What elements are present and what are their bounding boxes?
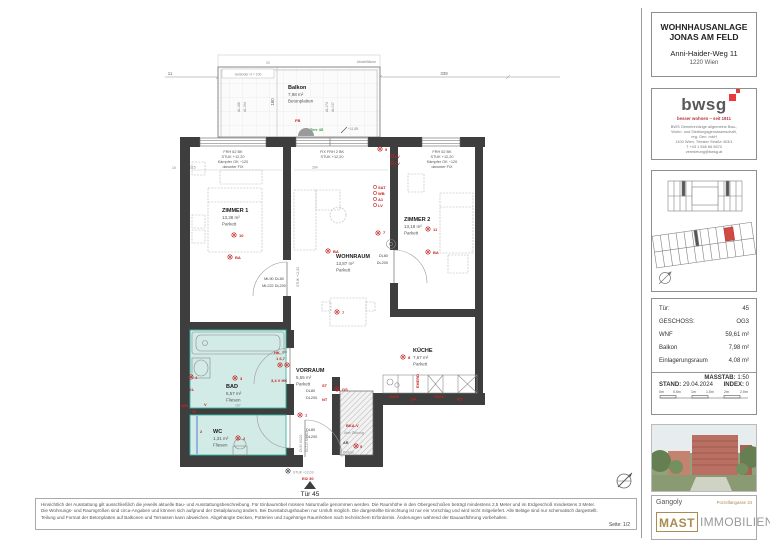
window-annotations: FRH 62 BK STUK +12,20 Kämpfer OK ~120 da… — [218, 150, 458, 169]
room-name: Balkon — [288, 85, 307, 91]
immobilien-logo-text: IMMOBILIEN — [700, 515, 770, 529]
element-code: AL174 — [325, 102, 329, 112]
bwsg-block: bwsg besser wohnen – seit 1911 BWS Gemei… — [651, 88, 757, 160]
row-label: GESCHOSS: — [659, 319, 695, 325]
room-name: WC — [213, 429, 222, 435]
unit-info-table: Tür: 45 GESCHOSS: OG3 WNF 59,61 m² Balko… — [651, 298, 757, 415]
row-value: 7,98 m² — [729, 345, 749, 351]
room-floor: Parkett — [404, 231, 419, 236]
site-plan-block — [651, 170, 757, 292]
scale-tick-label: 1.5m — [706, 390, 714, 394]
project-name-line1: WOHNHAUSANLAGE — [652, 22, 756, 32]
north-arrow-icon — [612, 468, 636, 497]
wb-label: WB — [378, 191, 385, 196]
balcony: Geländer H = 100 180 Balkon 7,98 m² Beto… — [218, 67, 380, 137]
abstellflaeche-strip: Abstellfläche — [218, 55, 380, 67]
eherd-label: EHERD — [415, 374, 420, 388]
dim-label: 264 — [312, 166, 318, 170]
abstellflaeche-label: Abstellfläche — [357, 60, 376, 64]
dim-label: 20 — [266, 61, 270, 65]
disclaimer-line: Die Wohnungs- und Raumgrößen sind circa-… — [41, 508, 631, 514]
row-value: OG3 — [736, 319, 749, 325]
window-spec: Kämpfer OK ~120 — [427, 160, 458, 164]
room-floor: Betonplatten — [288, 99, 314, 104]
project-city: 1220 Wien — [652, 60, 756, 66]
bwsg-logo-text: bwsg — [681, 95, 726, 114]
podest-label: Podest — [343, 451, 354, 455]
door-size: ML90 DL80 — [264, 277, 284, 281]
sheet-divider — [641, 8, 642, 538]
ba-label: BA — [235, 255, 241, 260]
mast-logo-text: MAST — [656, 512, 698, 532]
site-plan-drawing — [652, 171, 756, 291]
room-name: VORRAUM — [296, 368, 325, 374]
sat-label: SAT — [378, 185, 386, 190]
mast-logo: MAST IMMOBILIEN — [656, 512, 752, 532]
project-address: Anni-Haider-Weg 11 — [652, 49, 756, 58]
window-spec: darunter FIX — [222, 165, 244, 169]
door-size: ML222 DL200 — [262, 284, 286, 288]
index-value: 0 — [746, 382, 749, 388]
entrance-marker — [304, 481, 316, 489]
stand-value: 29.04.2024 — [683, 382, 713, 388]
bwsg-org-line: vermietung@bwsg.at — [652, 149, 756, 154]
lv-label: LV — [378, 203, 383, 208]
room-floor: Parkett — [413, 362, 428, 367]
floor-plan: 11 430 339 20 Abstellfläche Geländer H =… — [0, 0, 641, 545]
lv-label: LV — [395, 161, 400, 166]
ba-label: BA — [433, 250, 439, 255]
broker-block: Gangoly Porzellangasse 34 MAST IMMOBILIE… — [651, 495, 757, 540]
element-code: AL194 — [243, 102, 247, 112]
lv-label: LV — [395, 154, 400, 159]
kl-label: KL — [189, 387, 195, 392]
dimension-chain-interior: 15 215 264 — [172, 166, 388, 171]
h105-label: H105 — [389, 394, 399, 399]
room-floor: Fliesen — [226, 398, 241, 403]
window-spec: STUK +12,20 — [222, 155, 245, 159]
building-rendering — [651, 424, 757, 492]
door-size: DL80 — [306, 389, 315, 393]
railing-label: Geländer H = 100 — [235, 73, 262, 77]
ba-label: BA — [333, 249, 339, 254]
room-name: KÜCHE — [413, 347, 433, 354]
room-area: 13,18 m² — [404, 224, 422, 229]
element-code: AL037 — [331, 102, 335, 112]
room-area: 7,98 m² — [288, 92, 304, 97]
row-value: 4,08 m² — [729, 358, 749, 364]
door-size: DL80 — [379, 254, 388, 258]
outlet-number: 9 — [385, 147, 388, 152]
outlet-number: 1 — [305, 413, 308, 418]
architect-name: Gangoly — [656, 499, 682, 506]
st-label: ST — [322, 383, 328, 388]
index-label: INDEX: — [724, 382, 744, 388]
page-number: Seite: 1/2 — [609, 522, 630, 528]
entrance: STUK +12,03 EI2 30 Tür 45 — [286, 469, 320, 498]
entrance-door-label: Tür 45 — [301, 491, 320, 498]
outlet-number: 10 — [239, 233, 244, 238]
fb-label: FB — [295, 118, 300, 123]
v-label: V — [204, 402, 207, 407]
massstab-label: MASSTAB: — [704, 375, 735, 381]
row-label: Tür: — [659, 306, 670, 312]
terrace-door-label: Terr 45 — [310, 127, 324, 132]
ar-label: AR — [343, 441, 349, 445]
scale-tick-label: 0.5m — [673, 390, 681, 394]
h105-label: H105 — [434, 394, 444, 399]
bwsg-logo-square-icon — [736, 89, 740, 93]
door-size: DL90 M222 — [299, 434, 303, 452]
room-area: 5,55 m² — [296, 375, 312, 380]
room-floor: Parkett — [222, 222, 237, 227]
outlet-number: 8 — [408, 355, 411, 360]
room-name: ZIMMER 1 — [222, 208, 248, 214]
furniture — [192, 162, 473, 326]
outlet-number: 7 — [342, 310, 345, 315]
row-value: 59,61 m² — [725, 332, 749, 338]
disclaimer-line: Teilung und Format der Betonplatten auf … — [41, 515, 631, 521]
disclaimer-block: Hinsichtlich der Ausstattung gilt aussch… — [35, 498, 637, 530]
massstab-value: 1:50 — [737, 375, 749, 381]
dim-label: 15 — [172, 166, 176, 170]
gs-label: GS — [342, 387, 348, 392]
outlet-number: 11 — [433, 227, 438, 232]
window-spec: darunter FIX — [431, 165, 453, 169]
row-value: 45 — [742, 306, 749, 312]
project-name-line2: JONAS AM FELD — [652, 32, 756, 42]
a1-label: A1 — [378, 197, 384, 202]
room-area: 5,57 m² — [226, 391, 242, 396]
room-name: ZIMMER 2 — [404, 217, 430, 223]
tr-label: TR — [191, 409, 196, 414]
row-label: WNF — [659, 332, 673, 338]
room-name: BAD — [226, 384, 238, 390]
highlighted-unit — [724, 227, 735, 241]
scale-tick-label: 2.5m — [740, 390, 748, 394]
level-label: +11,85 — [348, 127, 358, 131]
row-label: Einlagerungsraum — [659, 358, 708, 364]
bka-label: BKA-V — [346, 423, 359, 428]
window-spec: Kämpfer OK ~120 — [218, 160, 249, 164]
table-row: GESCHOSS: OG3 — [652, 319, 756, 325]
dim-label: 215 — [190, 166, 196, 170]
row-label: Balkon — [659, 345, 677, 351]
fire-rating: EI2 30 — [302, 476, 314, 481]
broker-street: Porzellangasse 34 — [717, 500, 752, 505]
scale-tick-label: 1m — [691, 390, 696, 394]
da-label: DA — [411, 397, 417, 402]
bwsg-logo: bwsg — [681, 95, 726, 115]
table-row: Einlagerungsraum 4,08 m² — [652, 358, 756, 364]
site-compass-icon — [659, 272, 671, 284]
bwsg-logo-square-icon — [729, 94, 736, 101]
room-area: 13,38 m² — [222, 215, 240, 220]
room-area: 13,87 m² — [336, 261, 354, 266]
door-size: DL210 ML263 — [305, 431, 309, 452]
scale-tick-label: 0m — [659, 390, 664, 394]
dim-label: 11 — [168, 71, 173, 76]
hk-label: HK — [274, 350, 280, 355]
plan-sheet: 11 430 339 20 Abstellfläche Geländer H =… — [0, 0, 770, 545]
window-spec: FRH 62 BK — [223, 150, 243, 154]
door-size: DL200 — [306, 396, 317, 400]
table-row: WNF 59,61 m² — [652, 332, 756, 338]
shaft: BKA-V über Öffnung AR 5 Podest — [340, 391, 373, 455]
dim-label: 180 — [270, 98, 275, 106]
shaft-note: über Öffnung — [344, 431, 364, 435]
window-spec: FRH 62 BK — [432, 150, 452, 154]
outlet-number: 7 — [383, 230, 386, 235]
title-block: WOHNHAUSANLAGE JONAS AM FELD Anni-Haider… — [651, 12, 757, 77]
window-spec: STUK +12,20 — [321, 155, 344, 159]
room-floor: Parkett — [336, 268, 351, 273]
stand-label: STAND: — [659, 382, 681, 388]
room-area: 1,31 m² — [213, 436, 229, 441]
table-row: Balkon 7,98 m² — [652, 345, 756, 351]
table-row: Tür: 45 — [652, 306, 756, 312]
bwsg-tagline: besser wohnen – seit 1911 — [652, 116, 756, 121]
window-spec: STUK +12,20 — [431, 155, 454, 159]
dim-label: 339 — [440, 71, 448, 76]
level-note: STUK +11,92 — [296, 267, 300, 287]
room-name: WOHNRAUM — [336, 254, 370, 260]
window-spec: FIX FRH 2 BK — [320, 150, 345, 154]
room-floor: Fliesen — [213, 443, 228, 448]
scale-tick-label: 2m — [724, 390, 729, 394]
dim-label: 167 — [235, 404, 241, 408]
nt-label: NT — [322, 397, 328, 402]
element-code: AL188 — [237, 102, 241, 112]
door-size: DL200 — [377, 261, 388, 265]
entrance-level: STUK +12,03 — [293, 471, 314, 475]
wm-label: WM — [181, 403, 189, 408]
connections-label: 3,4 V HK — [271, 378, 287, 383]
ks-label: KS — [457, 397, 463, 402]
room-floor: Parkett — [296, 382, 311, 387]
outlet-number: 1 6,7 — [276, 356, 286, 361]
room-area: 7,67 m² — [413, 355, 429, 360]
scale-bar: 0m 0.5m 1m 1.5m 2m 2.5m — [659, 389, 751, 401]
